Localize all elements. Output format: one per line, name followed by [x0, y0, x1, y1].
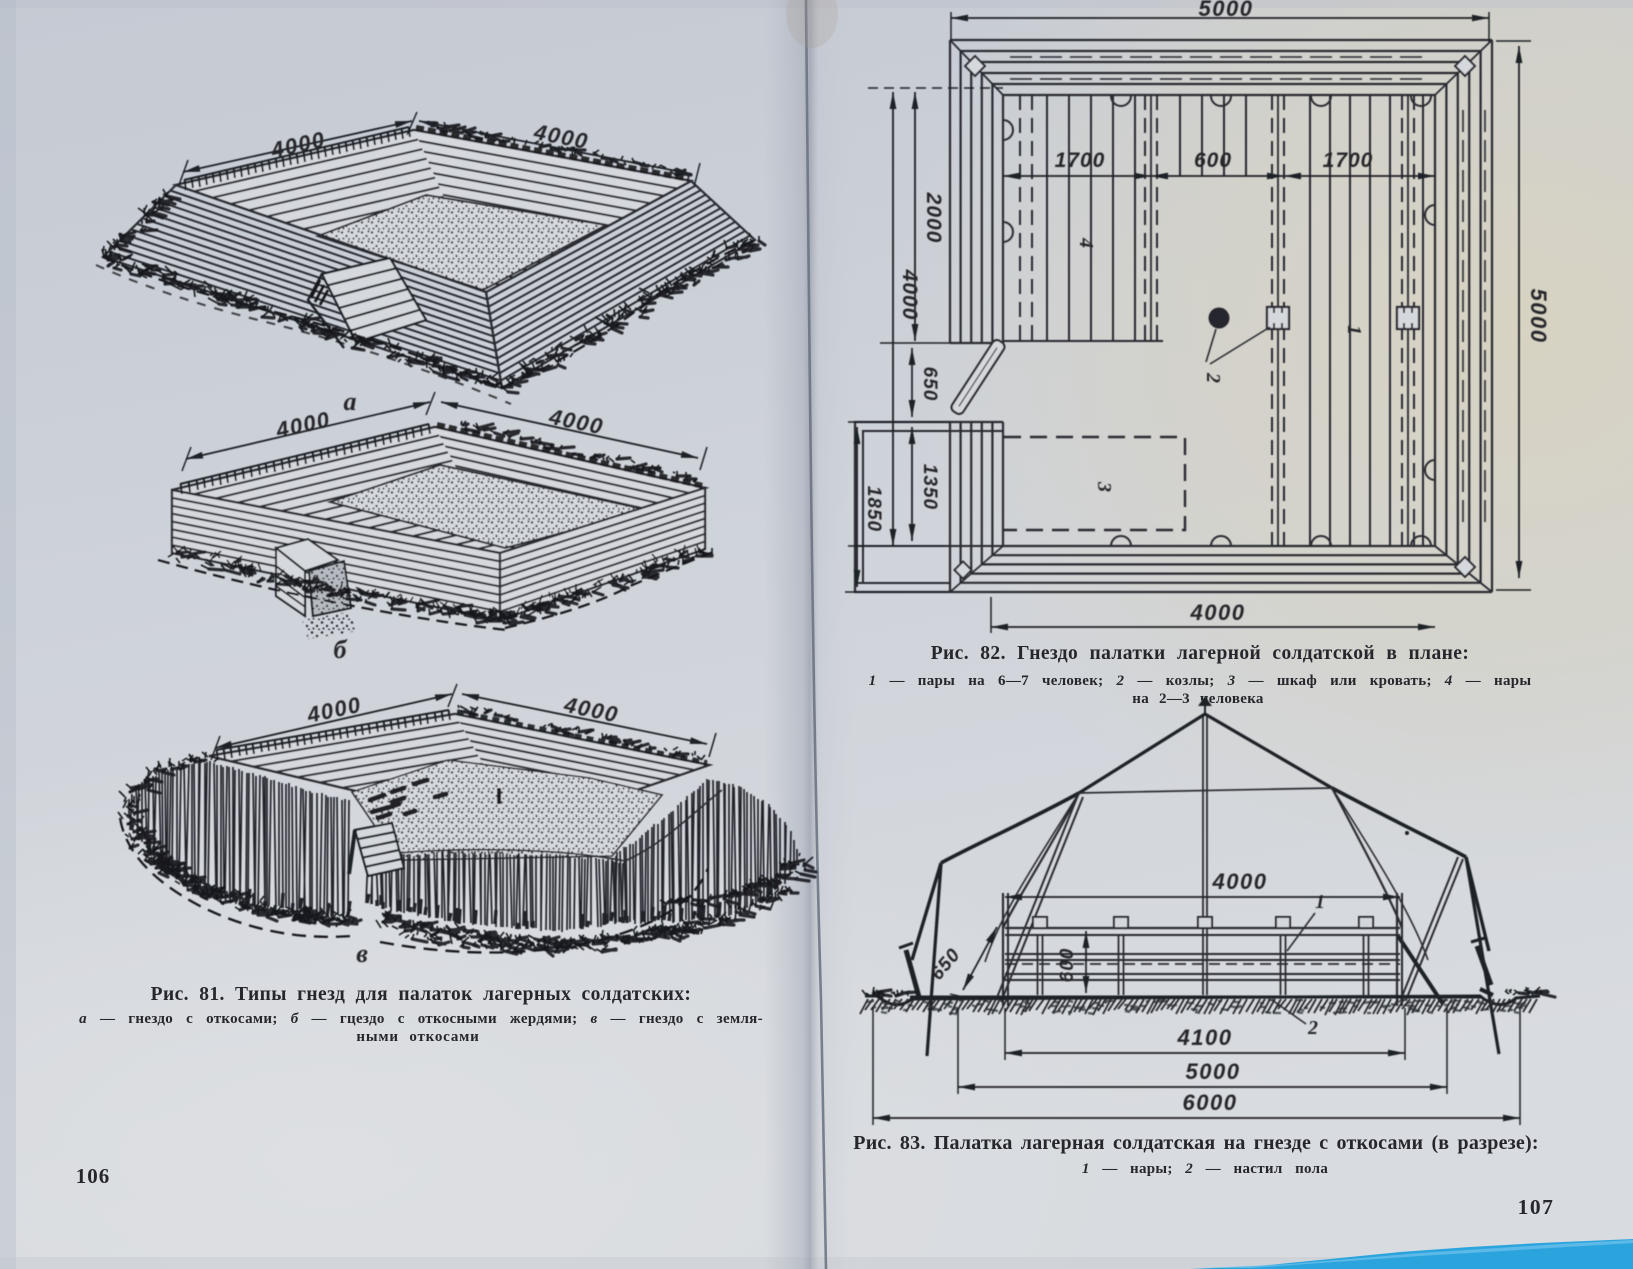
svg-text:Рис. 81. Типы гнезд для палато: Рис. 81. Типы гнезд для палаток лагерных…: [151, 984, 692, 1005]
svg-text:1: 1: [1343, 325, 1365, 335]
svg-text:2000: 2000: [922, 192, 945, 244]
svg-text:Рис. 82. Гнездо палатки лагерн: Рис. 82. Гнездо палатки лагерной солдатс…: [931, 643, 1470, 664]
svg-text:а — гнездо с откосами; б — гце: а — гнездо с откосами; б — гцездо с отко…: [79, 1011, 763, 1027]
svg-text:4000: 4000: [1212, 869, 1268, 894]
svg-text:106: 106: [76, 1164, 111, 1188]
svg-text:1 — пары на 6—7 человек; 2 — к: 1 — пары на 6—7 человек; 2 — козлы; 3 — …: [869, 673, 1532, 689]
svg-text:1850: 1850: [863, 486, 884, 532]
svg-text:2: 2: [1202, 372, 1224, 383]
svg-text:на 2—3 человека: на 2—3 человека: [1132, 691, 1264, 707]
svg-text:в: в: [356, 939, 368, 968]
svg-text:600: 600: [1057, 948, 1078, 983]
svg-text:5000: 5000: [1186, 1059, 1241, 1084]
svg-text:6000: 6000: [1183, 1090, 1238, 1115]
svg-text:5000: 5000: [1526, 289, 1551, 344]
svg-text:1 — нары; 2 — настил пола: 1 — нары; 2 — настил пола: [1082, 1161, 1329, 1177]
svg-text:107: 107: [1518, 1195, 1555, 1219]
svg-text:600: 600: [1194, 149, 1232, 172]
svg-text:1: 1: [1315, 891, 1325, 913]
svg-text:б: б: [334, 635, 348, 664]
svg-text:Рис. 83. Палатка лагерная солд: Рис. 83. Палатка лагерная солдатская на …: [853, 1132, 1538, 1154]
svg-text:4: 4: [1075, 237, 1097, 248]
svg-text:а: а: [344, 387, 357, 416]
svg-text:3: 3: [1093, 481, 1115, 492]
svg-text:4100: 4100: [1177, 1025, 1233, 1050]
svg-text:1700: 1700: [1323, 149, 1374, 172]
svg-text:4000: 4000: [898, 269, 921, 321]
svg-text:4000: 4000: [1190, 600, 1246, 625]
svg-text:650: 650: [919, 367, 940, 402]
svg-text:5000: 5000: [1199, 0, 1254, 21]
svg-text:2: 2: [1307, 1017, 1318, 1039]
svg-text:ными откосами: ными откосами: [356, 1029, 479, 1045]
svg-text:1700: 1700: [1055, 149, 1106, 172]
svg-text:1350: 1350: [919, 464, 940, 510]
